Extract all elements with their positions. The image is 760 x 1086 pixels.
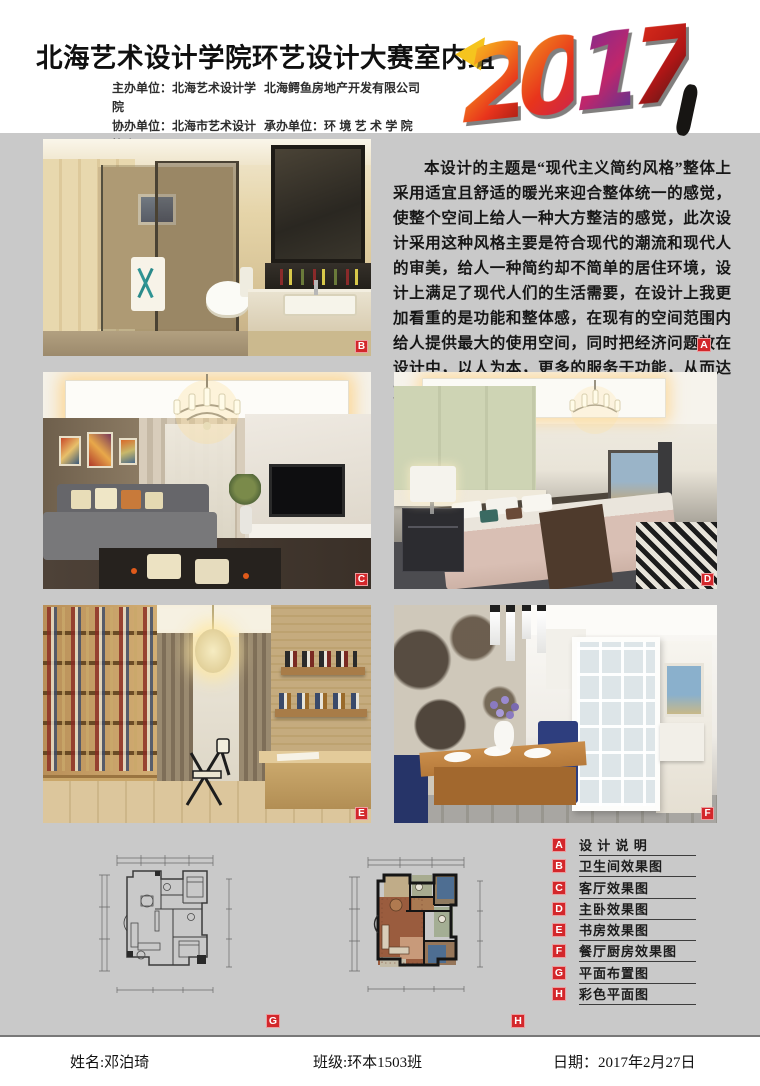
sofa-pillow-4: [145, 492, 163, 509]
legend-list: A 设 计 说 明 B 卫生间效果图 C 客厅效果图 D 主卧效果图 E 书房效…: [552, 838, 696, 1008]
pendant-light-2: [506, 605, 515, 661]
plant-foliage: [229, 474, 261, 510]
year-digit-7: 7: [630, 0, 686, 134]
legend-row-e: E 书房效果图: [552, 923, 696, 944]
balcony-window-view: [664, 663, 704, 717]
design-description: 本设计的主题是“现代主义简约风格”整体上采用适宜且舒适的暖光来迎合整体统一的感觉…: [393, 156, 731, 406]
legend-key-g: G: [552, 966, 566, 980]
shower-glass-door: [155, 161, 239, 351]
vanity-cabinet: [248, 329, 371, 356]
table-lamp-shade: [410, 466, 456, 502]
legend-label-d: 主卧效果图: [579, 902, 696, 920]
legend-label-b: 卫生间效果图: [579, 859, 696, 877]
dining-table-base: [434, 767, 576, 805]
flowers: [490, 701, 498, 709]
balcony-cabinet: [660, 723, 704, 761]
photo-label-f: F: [701, 807, 714, 820]
label-a-badge: A: [697, 338, 711, 352]
bed-runner: [539, 504, 613, 589]
dark-rug: [99, 548, 281, 589]
legend-row-c: C 客厅效果图: [552, 881, 696, 902]
legend-row-h: H 彩色平面图: [552, 987, 696, 1008]
dining-kitchen-photo: F: [394, 605, 717, 823]
bw-floor-plan: [95, 851, 237, 997]
legend-label-g: 平面布置图: [579, 966, 696, 984]
legend-key-b: B: [552, 859, 566, 873]
legend-key-a: A: [552, 838, 566, 852]
legend-row-f: F 餐厅厨房效果图: [552, 944, 696, 965]
host-company: 北海鳄鱼房地产开发有限公司: [264, 79, 420, 117]
legend-key-d: D: [552, 902, 566, 916]
poster-board: 北海艺术设计学院环艺设计大赛室内组 主办单位：北海艺术设计学院 北海鳄鱼房地产开…: [0, 0, 760, 1086]
legend-row-a: A 设 计 说 明: [552, 838, 696, 859]
shelf-books-top: [285, 651, 357, 667]
legend-row-d: D 主卧效果图: [552, 902, 696, 923]
plan-label-g: G: [266, 1014, 280, 1028]
class-name: 班级:环本1503班: [313, 1051, 422, 1072]
ottoman-2: [195, 559, 229, 584]
pendant-light-3: [522, 605, 531, 639]
photo-label-c: C: [355, 573, 368, 586]
bedroom-chandelier-icon: [566, 380, 624, 438]
nightstand-drawer-line: [408, 526, 458, 528]
year-digit-1: 1: [574, 3, 630, 140]
organizer-line-1: 主办单位：北海艺术设计学院 北海鳄鱼房地产开发有限公司: [112, 79, 420, 117]
legend-label-c: 客厅效果图: [579, 881, 696, 899]
teal-pillow: [479, 509, 498, 523]
photo-label-d: D: [701, 573, 714, 586]
sofa-pillow-1: [71, 490, 91, 509]
author-name: 姓名:邓泊琦: [70, 1051, 149, 1072]
legend-key-e: E: [552, 923, 566, 937]
nightstand: [402, 508, 464, 572]
ottoman-1: [147, 554, 181, 579]
photo-label-b: B: [355, 340, 368, 353]
vanity-mirror: [271, 145, 365, 263]
orange-accent-2: [243, 573, 249, 579]
faucet: [314, 280, 318, 295]
art-frame-3: [119, 438, 137, 465]
host-unit: 主办单位：北海艺术设计学院: [112, 79, 262, 117]
brown-pillow: [505, 507, 522, 520]
photo-label-e: E: [355, 807, 368, 820]
bedroom-photo: D: [394, 372, 717, 589]
orange-accent-1: [131, 568, 137, 574]
folding-chair-icon: [177, 731, 237, 807]
living-room-photo: C: [43, 372, 371, 589]
floating-shelf-2: [275, 709, 367, 717]
pendant-light-1: [490, 605, 500, 645]
legend-key-c: C: [552, 881, 566, 895]
legend-label-e: 书房效果图: [579, 923, 696, 941]
white-vase: [494, 721, 514, 751]
plan-label-h: H: [511, 1014, 525, 1028]
poster-title: 北海艺术设计学院环艺设计大赛室内组: [36, 36, 495, 75]
year-2017-logo: 2017: [455, 0, 724, 161]
pendant-light-4: [537, 605, 546, 653]
date: 日期：2017年2月27日: [553, 1051, 696, 1072]
shelf-bottles: [271, 269, 365, 285]
table-lamp-stem: [430, 500, 434, 514]
year-digit-0: 0: [518, 9, 574, 146]
shelf-books-bottom: [279, 693, 359, 709]
legend-label-f: 餐厅厨房效果图: [579, 944, 696, 962]
study-photo: E: [43, 605, 371, 823]
art-frame-1: [59, 436, 81, 466]
frosted-sliding-door: [572, 637, 660, 811]
sofa-pillow-3: [121, 490, 141, 509]
vanity-sink: [283, 294, 357, 316]
legend-key-h: H: [552, 987, 566, 1001]
pillow-3: [521, 493, 553, 512]
pendant-cord: [212, 605, 214, 631]
legend-label-a: 设 计 说 明: [579, 838, 696, 856]
tv-screen: [269, 464, 345, 517]
bathroom-photo: B: [43, 139, 371, 356]
chandelier-icon: [169, 374, 245, 452]
art-frame-2: [87, 432, 113, 468]
legend-label-h: 彩色平面图: [579, 987, 696, 1005]
sofa-pillow-2: [95, 488, 117, 509]
legend-key-f: F: [552, 944, 566, 958]
color-floor-plan: [344, 853, 489, 995]
book-spines: [47, 607, 153, 771]
floating-shelf-1: [281, 667, 365, 675]
year-digit-2: 2: [462, 15, 518, 152]
legend-row-b: B 卫生间效果图: [552, 859, 696, 880]
desk-front: [265, 763, 371, 809]
legend-row-g: G 平面布置图: [552, 966, 696, 987]
plant-vase: [240, 506, 252, 534]
woven-pendant-lamp: [195, 629, 231, 673]
